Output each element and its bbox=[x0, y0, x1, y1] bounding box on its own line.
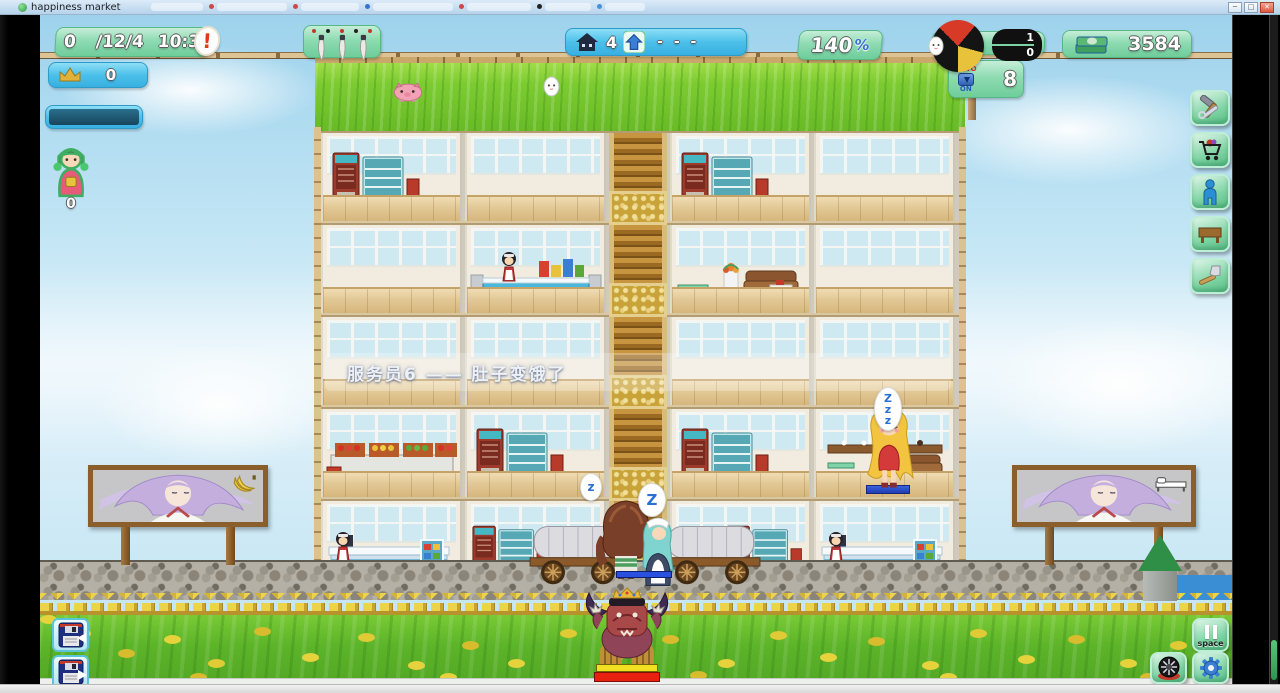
happiness-panel: 140 % bbox=[796, 30, 883, 60]
experience-bar bbox=[45, 105, 143, 129]
upgrade-value: - - - bbox=[657, 34, 699, 50]
room-empty[interactable] bbox=[814, 133, 955, 221]
wheel-camera-icon bbox=[1156, 655, 1182, 681]
auto-arrow-icon bbox=[958, 73, 974, 86]
building-frame-left bbox=[314, 127, 321, 589]
table-icon bbox=[1197, 224, 1223, 244]
decorate-button[interactable] bbox=[1190, 258, 1230, 294]
person-icon bbox=[1201, 179, 1219, 205]
boss-hp-bar bbox=[594, 672, 660, 682]
date-time-panel: 0 /12/4 10:35 ! bbox=[54, 27, 210, 57]
crown-icon bbox=[57, 66, 83, 84]
auto-on-label: ON bbox=[960, 86, 972, 93]
app-window: happiness market ─ □ ✕ bbox=[0, 0, 1280, 693]
roof-pig[interactable] bbox=[392, 81, 424, 102]
elevator-shaft[interactable] bbox=[609, 225, 667, 317]
shop-goods-button[interactable] bbox=[1190, 132, 1230, 168]
green-tower bbox=[1138, 535, 1182, 601]
room-empty[interactable] bbox=[321, 225, 462, 313]
building-stat-panel: 4 - - - bbox=[565, 28, 747, 56]
house-icon bbox=[574, 32, 600, 52]
player-character[interactable]: 0 bbox=[48, 140, 94, 212]
happiness-value: 140 bbox=[809, 33, 853, 57]
room-arcade[interactable] bbox=[670, 409, 811, 497]
building-frame-right bbox=[959, 127, 966, 589]
crown-panel: 0 bbox=[48, 62, 148, 88]
axe-icon bbox=[1197, 264, 1223, 288]
wrench-hammer-icon bbox=[1197, 95, 1223, 121]
room-empty[interactable] bbox=[465, 133, 606, 221]
money-amount: 3584 bbox=[1128, 33, 1181, 55]
build-tools-button[interactable] bbox=[1190, 90, 1230, 126]
auto-count: 8 bbox=[1003, 67, 1017, 91]
billboard-left[interactable] bbox=[88, 465, 268, 527]
notification-banner: 服务员6 —— 肚子变饿了 bbox=[325, 353, 951, 391]
vending-sprite bbox=[331, 147, 423, 207]
cart-icon bbox=[1197, 137, 1223, 163]
right-toolbar bbox=[1190, 90, 1230, 294]
vending-sprite bbox=[680, 423, 772, 483]
room-arcade[interactable] bbox=[321, 133, 462, 221]
knife-icon bbox=[336, 34, 348, 60]
room-shop[interactable] bbox=[465, 225, 606, 313]
roof-egg-pet[interactable] bbox=[543, 76, 560, 97]
camera-button[interactable] bbox=[1150, 652, 1187, 684]
hire-staff-button[interactable] bbox=[1190, 174, 1230, 210]
maid-sprite bbox=[333, 531, 353, 563]
boss-health-bars bbox=[596, 664, 660, 682]
player-avatar bbox=[48, 140, 94, 202]
vending-sprite bbox=[680, 147, 772, 207]
app-icon bbox=[18, 3, 27, 12]
crown-count: 0 bbox=[83, 66, 139, 84]
cash-icon bbox=[1073, 33, 1109, 55]
zzz-bubble: Z z z bbox=[874, 387, 902, 431]
money-panel: 3584 bbox=[1062, 30, 1192, 58]
countershop-sprite bbox=[469, 253, 603, 305]
furniture-button[interactable] bbox=[1190, 216, 1230, 252]
maid-sprite bbox=[826, 531, 846, 563]
letterbox-left bbox=[0, 15, 40, 684]
room-lounge[interactable] bbox=[670, 225, 811, 313]
sleep-bubble-small: z bbox=[580, 473, 602, 501]
year-counter: 0 bbox=[63, 32, 76, 52]
house-count: 4 bbox=[606, 33, 617, 52]
vending-sprite bbox=[475, 423, 567, 483]
bed-icon bbox=[1155, 474, 1187, 492]
window-bottom-border bbox=[0, 684, 1280, 693]
save-button[interactable] bbox=[52, 618, 89, 652]
elevator-shaft[interactable] bbox=[609, 133, 667, 225]
scrollbar-thumb[interactable] bbox=[1271, 640, 1277, 680]
ratio-numerator: 1 bbox=[992, 31, 1034, 44]
pause-label: space bbox=[1197, 639, 1223, 648]
notification-text: 服务员6 —— 肚子变饿了 bbox=[347, 360, 567, 385]
scrollbar-track[interactable] bbox=[1269, 15, 1278, 684]
room-empty[interactable] bbox=[814, 225, 955, 313]
stairs bbox=[609, 225, 667, 283]
boss-shield-bar bbox=[596, 664, 658, 672]
knife-icon bbox=[357, 34, 369, 60]
knife-icon bbox=[315, 34, 327, 60]
day-pie-chart bbox=[932, 20, 984, 72]
room-arcade[interactable] bbox=[670, 133, 811, 221]
action-progress-bar bbox=[616, 571, 672, 578]
gear-icon bbox=[1199, 656, 1223, 680]
maximize-button[interactable]: □ bbox=[1244, 2, 1258, 13]
date-value: /12/4 bbox=[95, 32, 144, 52]
egg-marker-icon bbox=[928, 36, 944, 56]
floor-4F bbox=[321, 225, 959, 313]
gold-panel bbox=[609, 283, 667, 317]
pause-icon bbox=[1205, 625, 1217, 639]
sleep-bubble-mid: Z bbox=[638, 483, 666, 517]
settings-button[interactable] bbox=[1192, 652, 1229, 684]
room-fruit[interactable] bbox=[321, 409, 462, 497]
customer-ratio-panel: 1 0 bbox=[992, 29, 1042, 61]
window-controls: ─ □ ✕ bbox=[1228, 2, 1274, 13]
background-tabs bbox=[151, 3, 1228, 11]
lounge-sprite bbox=[674, 257, 808, 305]
window-title: happiness market bbox=[31, 0, 121, 15]
ratio-denominator: 0 bbox=[992, 46, 1034, 59]
minimize-button[interactable]: ─ bbox=[1228, 2, 1242, 13]
bananas-icon bbox=[231, 474, 259, 496]
window-titlebar[interactable]: happiness market ─ □ ✕ bbox=[0, 0, 1280, 15]
pause-space-button[interactable]: space bbox=[1192, 618, 1229, 652]
stairs bbox=[609, 409, 667, 467]
stairs bbox=[609, 133, 667, 191]
knife-rack[interactable] bbox=[303, 25, 381, 58]
maid-sprite bbox=[499, 251, 519, 283]
billboard-right[interactable] bbox=[1012, 465, 1196, 527]
letterbox-right bbox=[1232, 15, 1280, 684]
fruit-sprite bbox=[325, 435, 461, 487]
game-viewport: 服务员6 —— 肚子变饿了 bbox=[40, 15, 1232, 684]
load-button[interactable] bbox=[52, 655, 89, 684]
happiness-unit: % bbox=[853, 36, 870, 54]
gold-panel bbox=[609, 191, 667, 225]
player-level: 0 bbox=[66, 196, 76, 212]
floor-5F bbox=[321, 133, 959, 221]
close-button[interactable]: ✕ bbox=[1260, 2, 1274, 13]
upgrade-arrow-button[interactable] bbox=[623, 31, 645, 53]
